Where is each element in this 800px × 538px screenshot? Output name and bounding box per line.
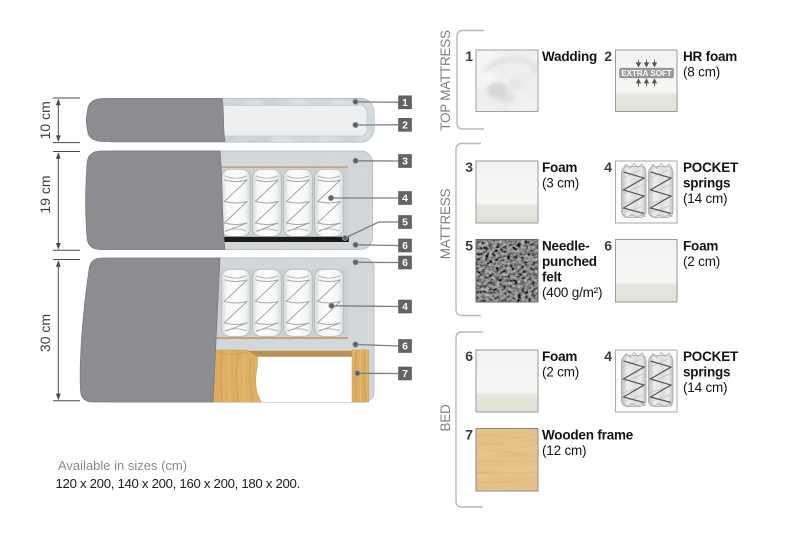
svg-text:4: 4 (402, 301, 408, 313)
svg-text:(14 cm): (14 cm) (683, 380, 727, 395)
svg-text:Wooden frame: Wooden frame (542, 428, 634, 443)
svg-text:2: 2 (604, 48, 612, 64)
svg-text:7: 7 (402, 368, 408, 380)
svg-text:Foam: Foam (683, 239, 718, 254)
svg-text:1: 1 (465, 48, 473, 64)
svg-text:(12 cm): (12 cm) (542, 443, 586, 458)
svg-text:POCKET: POCKET (683, 160, 739, 175)
svg-text:2: 2 (402, 120, 408, 132)
svg-text:(14 cm): (14 cm) (683, 191, 727, 206)
svg-text:punched: punched (542, 254, 597, 269)
svg-text:HR foam: HR foam (683, 49, 737, 64)
svg-text:Foam: Foam (542, 349, 577, 364)
svg-text:Wadding: Wadding (542, 49, 597, 64)
svg-text:springs: springs (683, 176, 730, 191)
svg-text:(3 cm): (3 cm) (542, 176, 579, 191)
svg-text:6: 6 (402, 341, 408, 353)
svg-text:(2 cm): (2 cm) (683, 254, 720, 269)
svg-text:6: 6 (402, 240, 408, 252)
svg-text:MATTRESS: MATTRESS (438, 189, 453, 260)
svg-text:felt: felt (542, 270, 562, 285)
svg-text:19 cm: 19 cm (37, 175, 53, 213)
svg-text:6: 6 (465, 348, 473, 364)
svg-text:EXTRA SOFT: EXTRA SOFT (621, 69, 671, 78)
svg-text:4: 4 (402, 193, 408, 205)
svg-text:(400 g/m²): (400 g/m²) (542, 285, 602, 300)
svg-text:30 cm: 30 cm (37, 314, 53, 352)
svg-text:5: 5 (465, 238, 473, 254)
svg-text:Available in sizes (cm): Available in sizes (cm) (58, 458, 187, 473)
svg-text:3: 3 (402, 156, 408, 168)
svg-text:6: 6 (604, 238, 612, 254)
svg-text:1: 1 (402, 97, 408, 109)
svg-text:Needle-: Needle- (542, 239, 589, 254)
svg-text:10 cm: 10 cm (37, 101, 53, 139)
svg-text:springs: springs (683, 365, 730, 380)
svg-text:TOP MATTRESS: TOP MATTRESS (438, 30, 453, 131)
svg-text:4: 4 (604, 348, 612, 364)
svg-text:3: 3 (465, 159, 473, 175)
svg-text:120 x 200, 140 x 200, 160 x 20: 120 x 200, 140 x 200, 160 x 200, 180 x 2… (56, 476, 300, 491)
svg-text:BED: BED (438, 404, 453, 432)
svg-text:Foam: Foam (542, 160, 577, 175)
svg-text:5: 5 (402, 217, 408, 229)
svg-text:POCKET: POCKET (683, 349, 739, 364)
svg-text:6: 6 (402, 257, 408, 269)
svg-text:7: 7 (465, 427, 473, 443)
svg-text:(8 cm): (8 cm) (683, 65, 720, 80)
svg-text:4: 4 (604, 159, 612, 175)
svg-text:(2 cm): (2 cm) (542, 365, 579, 380)
